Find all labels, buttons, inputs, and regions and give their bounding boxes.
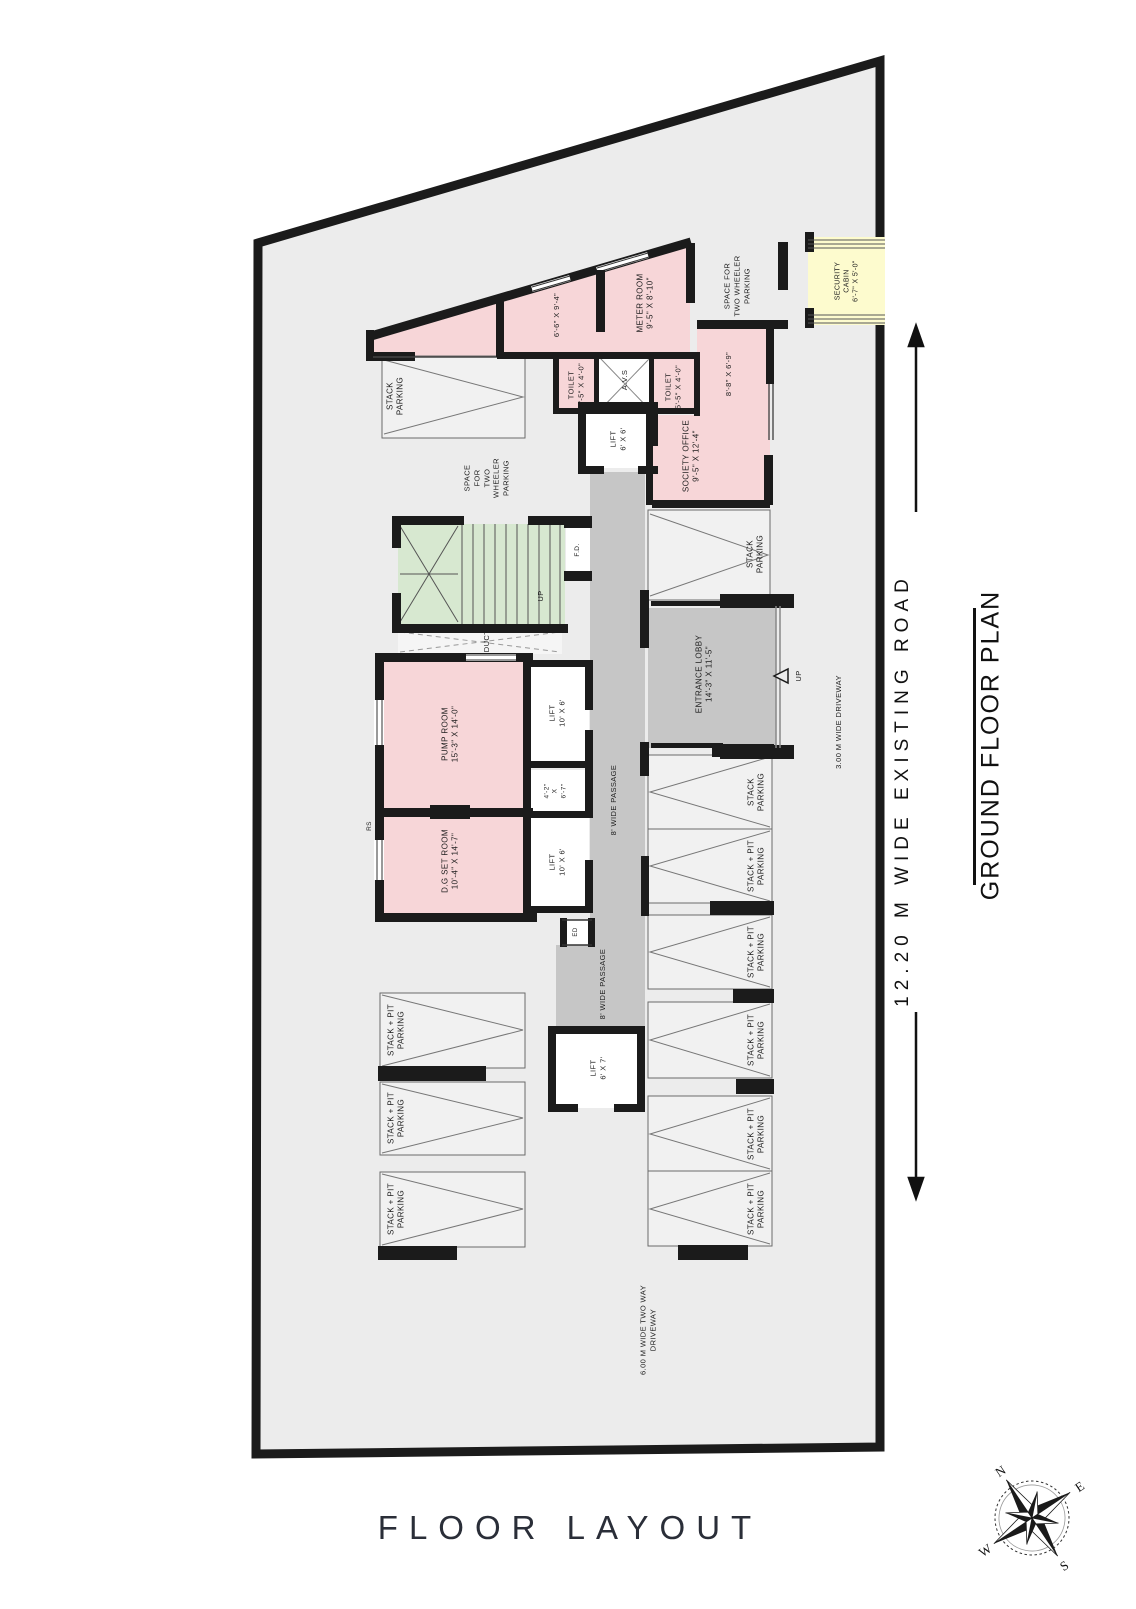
toilet-2-label: TOILET 5'-5" X 4'-0" bbox=[663, 365, 683, 409]
entrance-lobby-label: ENTRANCE LOBBY 14'-3" X 11'-5" bbox=[695, 635, 716, 714]
stack-parking-topleft-label: STACK PARKING bbox=[386, 377, 407, 415]
room-6-6-dims-label: 6'-6" X 9'-4" bbox=[552, 293, 562, 337]
ed-label: ED bbox=[573, 927, 581, 936]
compass-w-label: W bbox=[976, 1540, 995, 1560]
right-stall-4-label: STACK + PIT PARKING bbox=[747, 1014, 768, 1066]
lift-10x6-lower-label: LIFT 10' X 6' bbox=[547, 848, 567, 876]
road-label: 12.20 M WIDE EXISTING ROAD bbox=[892, 573, 914, 1007]
meter-room-label: METER ROOM 9'-5" X 8'-10" bbox=[636, 273, 657, 332]
driveway-3m-label: 3.00 M WIDE DRIVEWAY bbox=[834, 675, 844, 769]
rs-label: RS bbox=[366, 821, 374, 831]
left-stall-2-label: STACK + PIT PARKING bbox=[387, 1092, 408, 1144]
pump-room-label: PUMP ROOM 15'-3" X 14'-0" bbox=[441, 706, 462, 763]
stack-parking-mid-label: STACK PARKING bbox=[746, 535, 767, 573]
right-stall-5-label: STACK + PIT PARKING bbox=[747, 1108, 768, 1160]
compass-s-label: S bbox=[1057, 1557, 1071, 1573]
compass-e-label: E bbox=[1072, 1478, 1087, 1495]
duct-label: DUCT bbox=[482, 630, 492, 652]
floor-plan-page: N E S W STACK PARKING6'-6" X 9'-4"METER … bbox=[0, 0, 1136, 1609]
driveway-6m-label: 6.00 M WIDE TWO WAY DRIVEWAY bbox=[638, 1285, 658, 1375]
floor-layout-title: FLOOR LAYOUT bbox=[378, 1509, 762, 1547]
room-4-2-label: 4'-2" X 6'-7" bbox=[543, 784, 568, 799]
lift-6x7-label: LIFT 6' X 7' bbox=[588, 1056, 608, 1079]
security-cabin-label: SECURITY CABIN 6'-7" X 5'-0" bbox=[833, 260, 860, 302]
two-wheeler-mid-label: SPACE FOR TWO WHEELER PARKING bbox=[463, 458, 512, 498]
compass-rose: N E S W bbox=[944, 1431, 1119, 1607]
duct-area bbox=[398, 630, 562, 654]
plan-title: GROUND FLOOR PLAN bbox=[977, 590, 1006, 900]
floor-plan-drawing: N E S W bbox=[0, 0, 1136, 1609]
dg-set-room-label: D.G SET ROOM 10'-4" X 14'-7" bbox=[441, 829, 462, 893]
two-wheeler-top-label: SPACE FOR TWO WHEELER PARKING bbox=[722, 255, 751, 316]
left-stall-1-label: STACK + PIT PARKING bbox=[387, 1004, 408, 1056]
compass-n-label: N bbox=[992, 1462, 1009, 1480]
passage-lower-label: 8' WIDE PASSAGE bbox=[598, 949, 608, 1020]
right-stall-3-label: STACK + PIT PARKING bbox=[747, 926, 768, 978]
road-arrow-up bbox=[909, 326, 923, 346]
lift-6x6-label: LIFT 6' X 6' bbox=[608, 427, 628, 450]
left-stall-3-label: STACK + PIT PARKING bbox=[387, 1183, 408, 1235]
lift-10x6-upper-label: LIFT 10' X 6' bbox=[547, 699, 567, 727]
avs-label: A.V.S bbox=[620, 370, 630, 391]
compass-star bbox=[968, 1454, 1096, 1582]
entrance-up-label: UP bbox=[794, 670, 804, 681]
stairs-up-label: UP bbox=[536, 590, 546, 601]
passage-upper-label: 8' WIDE PASSAGE bbox=[609, 765, 619, 836]
road-arrow-down bbox=[909, 1178, 923, 1198]
plan-title-underline bbox=[973, 608, 976, 885]
right-stall-6-label: STACK + PIT PARKING bbox=[747, 1183, 768, 1235]
toilet-1-label: TOILET 5'-5" X 4'-0" bbox=[566, 363, 586, 407]
fd-label: F.D. bbox=[574, 543, 582, 556]
right-stall-2-label: STACK + PIT PARKING bbox=[747, 840, 768, 892]
society-office-room bbox=[652, 415, 770, 505]
room-8-8-dims-label: 8'-8" X 6'-9" bbox=[724, 352, 734, 396]
society-office-label: SOCIETY OFFICE 9'-5" X 12'-4" bbox=[682, 420, 703, 492]
right-stall-1-label: STACK PARKING bbox=[747, 773, 768, 811]
